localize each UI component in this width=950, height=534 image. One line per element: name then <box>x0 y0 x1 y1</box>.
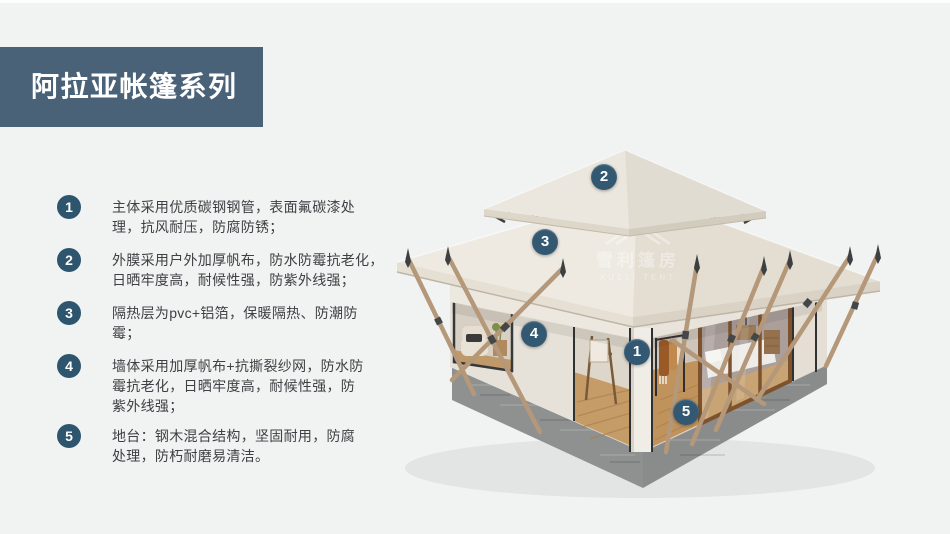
tent-illustration: 雪利篷房 XUELI TENT <box>0 0 950 534</box>
slide: 阿拉亚帐篷系列 1 主体采用优质碳钢钢管，表面氟碳漆处 理，抗风耐压，防腐防锈；… <box>0 0 950 534</box>
top-roof <box>484 150 766 236</box>
tent-marker-4: 4 <box>521 321 547 347</box>
watermark-en: XUELI TENT <box>600 273 676 282</box>
watermark-cn: 雪利篷房 <box>596 250 680 270</box>
tent-marker-2: 2 <box>591 164 617 190</box>
armchair <box>461 326 488 356</box>
tent-marker-3: 3 <box>532 229 558 255</box>
tent-marker-5: 5 <box>673 399 699 425</box>
tent-marker-1: 1 <box>624 339 650 365</box>
